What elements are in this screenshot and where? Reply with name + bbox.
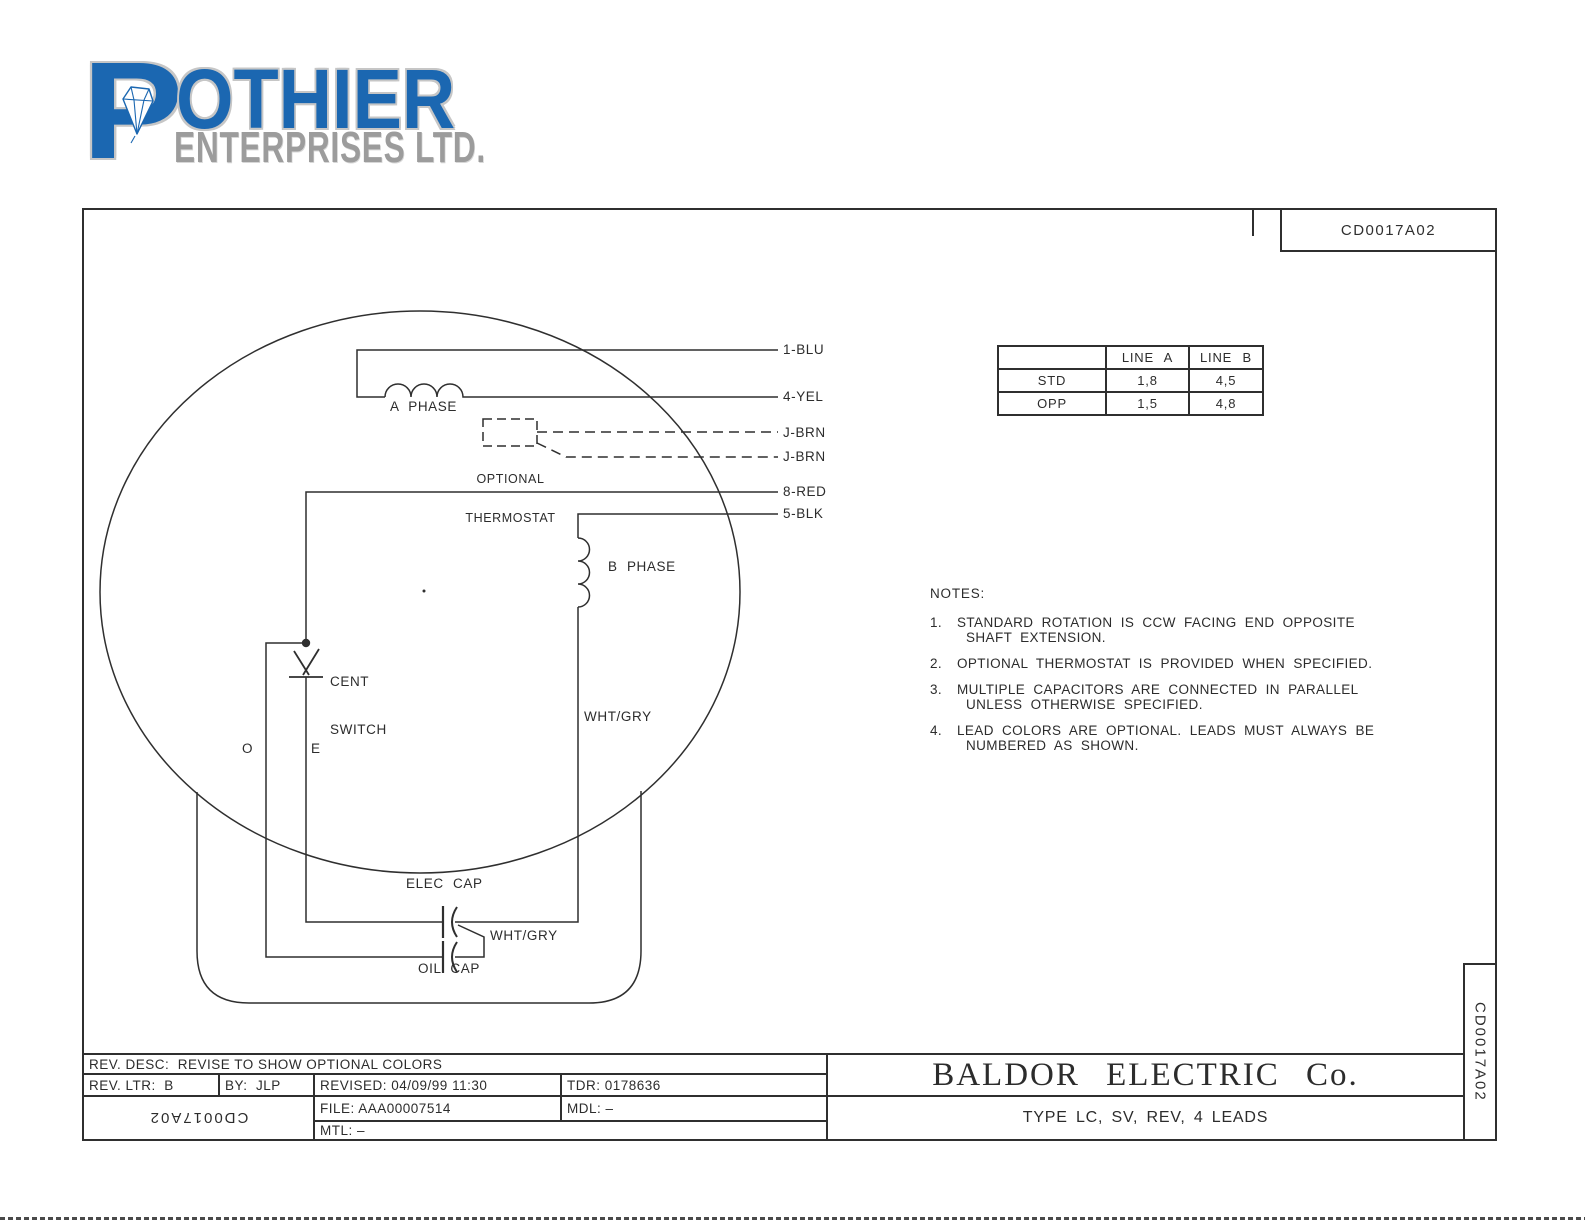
drawing-number-flipped: CD0017A02 bbox=[82, 1095, 315, 1141]
lead-label-8red: 8-RED bbox=[783, 484, 827, 499]
o-label: O bbox=[242, 741, 253, 756]
lead-label-1blu: 1-BLU bbox=[783, 342, 824, 357]
notes-section: NOTES: 1. STANDARD ROTATION IS CCW FACIN… bbox=[930, 586, 1450, 764]
thermostat-lead-2 bbox=[537, 443, 778, 457]
lead-label-jbrn-1: J-BRN bbox=[783, 425, 826, 440]
table-cell-opp-a: 1,5 bbox=[1106, 392, 1189, 415]
a-phase-coil bbox=[385, 384, 778, 397]
thermostat-label: OPTIONAL THERMOSTAT bbox=[453, 447, 568, 551]
a-phase-wire bbox=[357, 350, 778, 397]
b-phase-label: B PHASE bbox=[608, 559, 676, 574]
type-line-cell: TYPE LC, SV, REV, 4 LEADS bbox=[826, 1095, 1465, 1141]
cap-parallel-link bbox=[455, 925, 484, 957]
notes-title: NOTES: bbox=[930, 586, 1450, 601]
note-3: 3. MULTIPLE CAPACITORS ARE CONNECTED IN … bbox=[930, 682, 1450, 712]
e-label: E bbox=[311, 741, 321, 756]
table-cell-std-b: 4,5 bbox=[1189, 369, 1263, 392]
thermostat-box bbox=[483, 419, 537, 446]
a-phase-label: A PHASE bbox=[390, 399, 457, 414]
table-row: STD 1,8 4,5 bbox=[998, 369, 1263, 392]
table-header-line-b: LINE B bbox=[1189, 346, 1263, 369]
motor-body-circle bbox=[100, 311, 740, 873]
wht-gry-wire bbox=[455, 607, 578, 922]
company-name-cell: BALDOR ELECTRIC Co. bbox=[826, 1053, 1465, 1097]
wht-gry-winding-label: WHT/GRY bbox=[584, 709, 652, 724]
b-phase-wire bbox=[578, 514, 778, 538]
drawing-number-side: CD0017A02 bbox=[1463, 963, 1497, 1141]
cent-switch-label: CENT SWITCH bbox=[330, 642, 387, 770]
table-cell-std: STD bbox=[998, 369, 1106, 392]
lead-label-5blk: 5-BLK bbox=[783, 506, 824, 521]
table-corner-cell bbox=[998, 346, 1106, 369]
note-4: 4. LEAD COLORS ARE OPTIONAL. LEADS MUST … bbox=[930, 723, 1450, 753]
table-header-line-a: LINE A bbox=[1106, 346, 1189, 369]
stray-dot bbox=[423, 590, 426, 593]
revised-cell: REVISED: 04/09/99 11:30 bbox=[313, 1073, 562, 1097]
drawing-sheet: P OTHIER ENTERPRISES LTD. CD0017A02 bbox=[0, 0, 1585, 1225]
rev-ltr-cell: REV. LTR: B bbox=[82, 1073, 220, 1097]
table-cell-opp-b: 4,8 bbox=[1189, 392, 1263, 415]
table-row: OPP 1,5 4,8 bbox=[998, 392, 1263, 415]
rotation-table: LINE A LINE B STD 1,8 4,5 OPP 1,5 4,8 bbox=[997, 345, 1264, 416]
mtl-cell: MTL: – bbox=[313, 1120, 828, 1141]
note-2: 2. OPTIONAL THERMOSTAT IS PROVIDED WHEN … bbox=[930, 656, 1450, 671]
elec-cap-label: ELEC CAP bbox=[406, 876, 483, 891]
lead-label-4yel: 4-YEL bbox=[783, 389, 824, 404]
by-cell: BY: JLP bbox=[218, 1073, 315, 1097]
wht-gry-cap-label: WHT/GRY bbox=[490, 928, 558, 943]
b-phase-coil bbox=[578, 538, 590, 607]
page-bottom-dashed-line bbox=[0, 1217, 1585, 1220]
table-cell-opp: OPP bbox=[998, 392, 1106, 415]
mdl-cell: MDL: – bbox=[560, 1095, 828, 1122]
table-cell-std-a: 1,8 bbox=[1106, 369, 1189, 392]
cent-switch-symbol bbox=[289, 649, 323, 677]
rev-desc-cell: REV. DESC: REVISE TO SHOW OPTIONAL COLOR… bbox=[82, 1053, 828, 1075]
note-1: 1. STANDARD ROTATION IS CCW FACING END O… bbox=[930, 615, 1450, 645]
junction-dot bbox=[302, 639, 310, 647]
oil-cap-label: OIL CAP bbox=[418, 961, 480, 976]
file-cell: FILE: AAA00007514 bbox=[313, 1095, 562, 1122]
tdr-cell: TDR: 0178636 bbox=[560, 1073, 828, 1097]
table-row: LINE A LINE B bbox=[998, 346, 1263, 369]
lead-label-jbrn-2: J-BRN bbox=[783, 449, 826, 464]
